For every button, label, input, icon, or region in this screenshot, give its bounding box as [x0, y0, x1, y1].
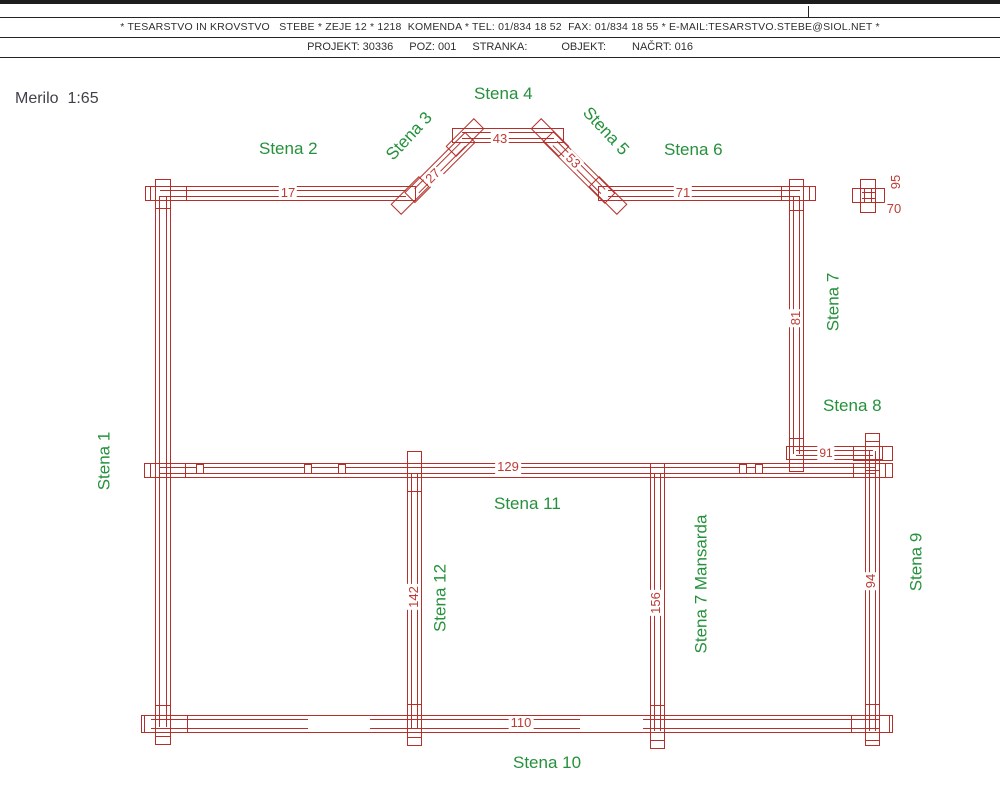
corner-notch [650, 705, 665, 749]
corner-notch [853, 446, 893, 461]
dim-94: 94 [864, 572, 878, 590]
door-opening [308, 718, 370, 730]
joint-tick [338, 464, 346, 473]
label-stena-11: Stena 11 [494, 494, 561, 513]
dim-71: 71 [674, 186, 692, 200]
dim-91: 91 [817, 446, 834, 460]
label-stena-3: Stena 3 [382, 108, 436, 164]
corner-notch [144, 463, 186, 478]
corner-notch [155, 179, 171, 209]
corner-notch [853, 463, 893, 478]
label-stena-7-mansarda: Stena 7 Mansarda [692, 515, 711, 654]
label-stena-5: Stena 5 [579, 103, 633, 159]
dim-142: 142 [407, 584, 421, 610]
dim-110: 110 [509, 716, 534, 730]
label-stena-7: Stena 7 [824, 273, 843, 332]
dim-70: 70 [885, 202, 903, 216]
corner-notch [407, 704, 422, 746]
label-stena-10: Stena 10 [513, 753, 581, 772]
label-stena-12: Stena 12 [431, 564, 450, 632]
corner-notch [155, 705, 171, 745]
corner-notch [789, 438, 804, 472]
dim-95: 95 [889, 173, 903, 191]
wall-stena-1 [155, 186, 171, 737]
door-opening [580, 718, 643, 730]
corner-notch [789, 179, 804, 211]
corner-notch [407, 451, 422, 492]
label-stena-9: Stena 9 [907, 533, 926, 592]
dim-156: 156 [649, 590, 663, 616]
label-stena-4: Stena 4 [474, 84, 533, 103]
floor-plan: 17 27 43 53 71 95 70 81 91 129 142 156 9… [0, 0, 1000, 800]
label-stena-1: Stena 1 [95, 432, 114, 491]
joint-tick [739, 464, 747, 473]
label-stena-8: Stena 8 [823, 396, 882, 415]
joint-tick [755, 464, 763, 473]
corner-notch [865, 704, 880, 746]
label-stena-6: Stena 6 [664, 140, 723, 159]
wall-stena-6 [598, 186, 810, 201]
joint-tick [304, 464, 312, 473]
joint-tick [196, 464, 204, 473]
dim-43: 43 [491, 132, 509, 146]
post-cross [860, 179, 876, 213]
dim-81: 81 [789, 309, 803, 327]
label-stena-2: Stena 2 [259, 139, 318, 158]
dim-17: 17 [279, 186, 297, 200]
dim-129: 129 [495, 460, 521, 474]
wall-stena-9 [865, 441, 880, 741]
